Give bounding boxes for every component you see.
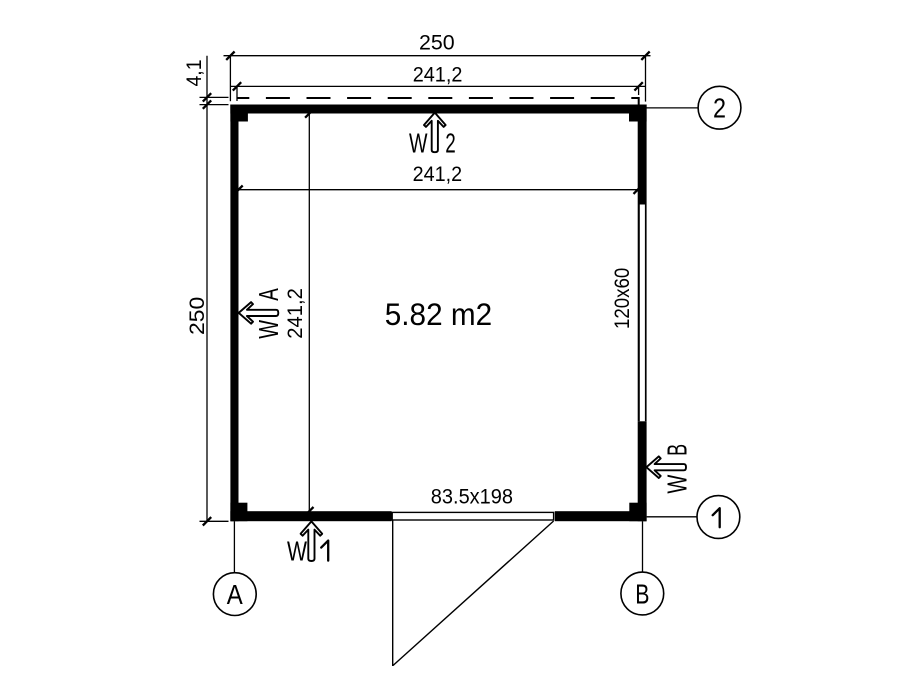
svg-text:250: 250 bbox=[186, 297, 209, 335]
svg-text:5.82 m2: 5.82 m2 bbox=[385, 296, 492, 332]
svg-text:4,1: 4,1 bbox=[183, 60, 206, 87]
svg-text:W: W bbox=[662, 474, 693, 493]
svg-text:W: W bbox=[409, 127, 428, 158]
svg-text:241,2: 241,2 bbox=[413, 163, 463, 186]
svg-text:2: 2 bbox=[445, 127, 456, 158]
svg-text:120x60: 120x60 bbox=[610, 268, 634, 329]
svg-text:241,2: 241,2 bbox=[413, 63, 463, 86]
svg-text:W: W bbox=[287, 535, 307, 566]
svg-text:241,2: 241,2 bbox=[284, 288, 307, 339]
svg-text:250: 250 bbox=[419, 32, 455, 55]
svg-text:2: 2 bbox=[713, 93, 726, 124]
svg-text:B: B bbox=[635, 579, 649, 610]
svg-text:W: W bbox=[253, 320, 284, 339]
svg-text:A: A bbox=[227, 579, 243, 610]
svg-text:B: B bbox=[662, 444, 693, 456]
svg-text:A: A bbox=[253, 288, 284, 301]
svg-text:83.5x198: 83.5x198 bbox=[431, 485, 513, 509]
